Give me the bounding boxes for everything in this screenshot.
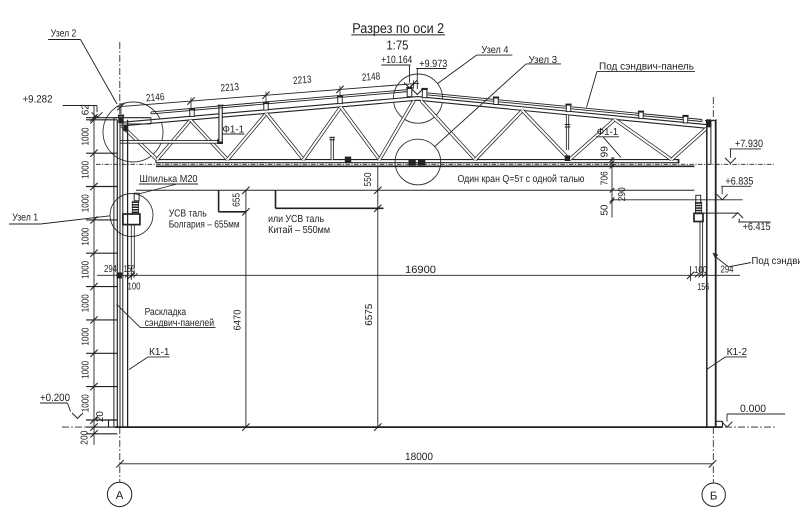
svg-text:1000: 1000	[80, 127, 91, 145]
svg-text:2146: 2146	[146, 92, 165, 104]
svg-text:+0.200: +0.200	[40, 392, 70, 404]
svg-text:2213: 2213	[293, 75, 312, 87]
svg-text:20: 20	[95, 411, 106, 423]
svg-text:6470: 6470	[232, 309, 243, 330]
svg-text:1000: 1000	[80, 327, 91, 345]
svg-text:+6.835: +6.835	[725, 175, 753, 187]
svg-text:Б: Б	[710, 490, 718, 502]
svg-text:1000: 1000	[80, 294, 91, 312]
svg-text:706: 706	[599, 171, 610, 185]
svg-text:Раскладка: Раскладка	[145, 307, 187, 318]
svg-text:655: 655	[231, 193, 242, 207]
svg-text:+6.415: +6.415	[743, 221, 771, 233]
svg-text:290: 290	[617, 187, 628, 201]
svg-text:50: 50	[599, 204, 610, 216]
svg-text:Китай – 550мм: Китай – 550мм	[268, 225, 330, 236]
svg-text:6575: 6575	[364, 303, 375, 325]
svg-text:156: 156	[124, 264, 135, 275]
svg-text:1:75: 1:75	[386, 37, 408, 52]
svg-text:100: 100	[128, 282, 141, 293]
svg-text:+10.164: +10.164	[381, 54, 412, 66]
svg-text:550: 550	[363, 172, 374, 186]
svg-text:А: А	[116, 490, 124, 502]
svg-text:1000: 1000	[80, 361, 91, 379]
svg-text:1000: 1000	[80, 194, 91, 212]
svg-text:Узел 4: Узел 4	[481, 45, 508, 56]
svg-text:1000: 1000	[80, 261, 91, 279]
svg-text:16900: 16900	[405, 264, 436, 276]
svg-text:99: 99	[599, 146, 610, 158]
svg-text:2213: 2213	[220, 82, 239, 94]
svg-text:1000: 1000	[80, 227, 91, 245]
svg-text:156: 156	[697, 282, 709, 293]
svg-text:Узел 2: Узел 2	[51, 28, 77, 39]
svg-text:Под сэндвич-панель: Под сэндвич-панель	[599, 61, 694, 72]
svg-text:+9.282: +9.282	[23, 94, 53, 106]
svg-text:18000: 18000	[405, 451, 433, 463]
svg-text:200: 200	[79, 430, 90, 444]
svg-text:УСВ таль: УСВ таль	[169, 208, 207, 219]
svg-text:2148: 2148	[361, 71, 380, 83]
svg-text:1000: 1000	[80, 394, 91, 412]
svg-text:Болгария – 655мм: Болгария – 655мм	[169, 220, 240, 231]
svg-text:0.000: 0.000	[740, 403, 766, 415]
svg-text:Один кран Q=5т с одной талью: Один кран Q=5т с одной талью	[458, 174, 585, 185]
svg-text:Под сэндвич-панель: Под сэндвич-панель	[752, 256, 800, 267]
svg-text:Узел 1: Узел 1	[12, 213, 38, 224]
svg-text:или УСВ таль: или УСВ таль	[268, 214, 324, 225]
svg-text:1000: 1000	[80, 161, 91, 179]
svg-text:100: 100	[694, 265, 707, 276]
svg-text:294: 294	[104, 264, 117, 275]
svg-text:+7.930: +7.930	[735, 138, 763, 150]
